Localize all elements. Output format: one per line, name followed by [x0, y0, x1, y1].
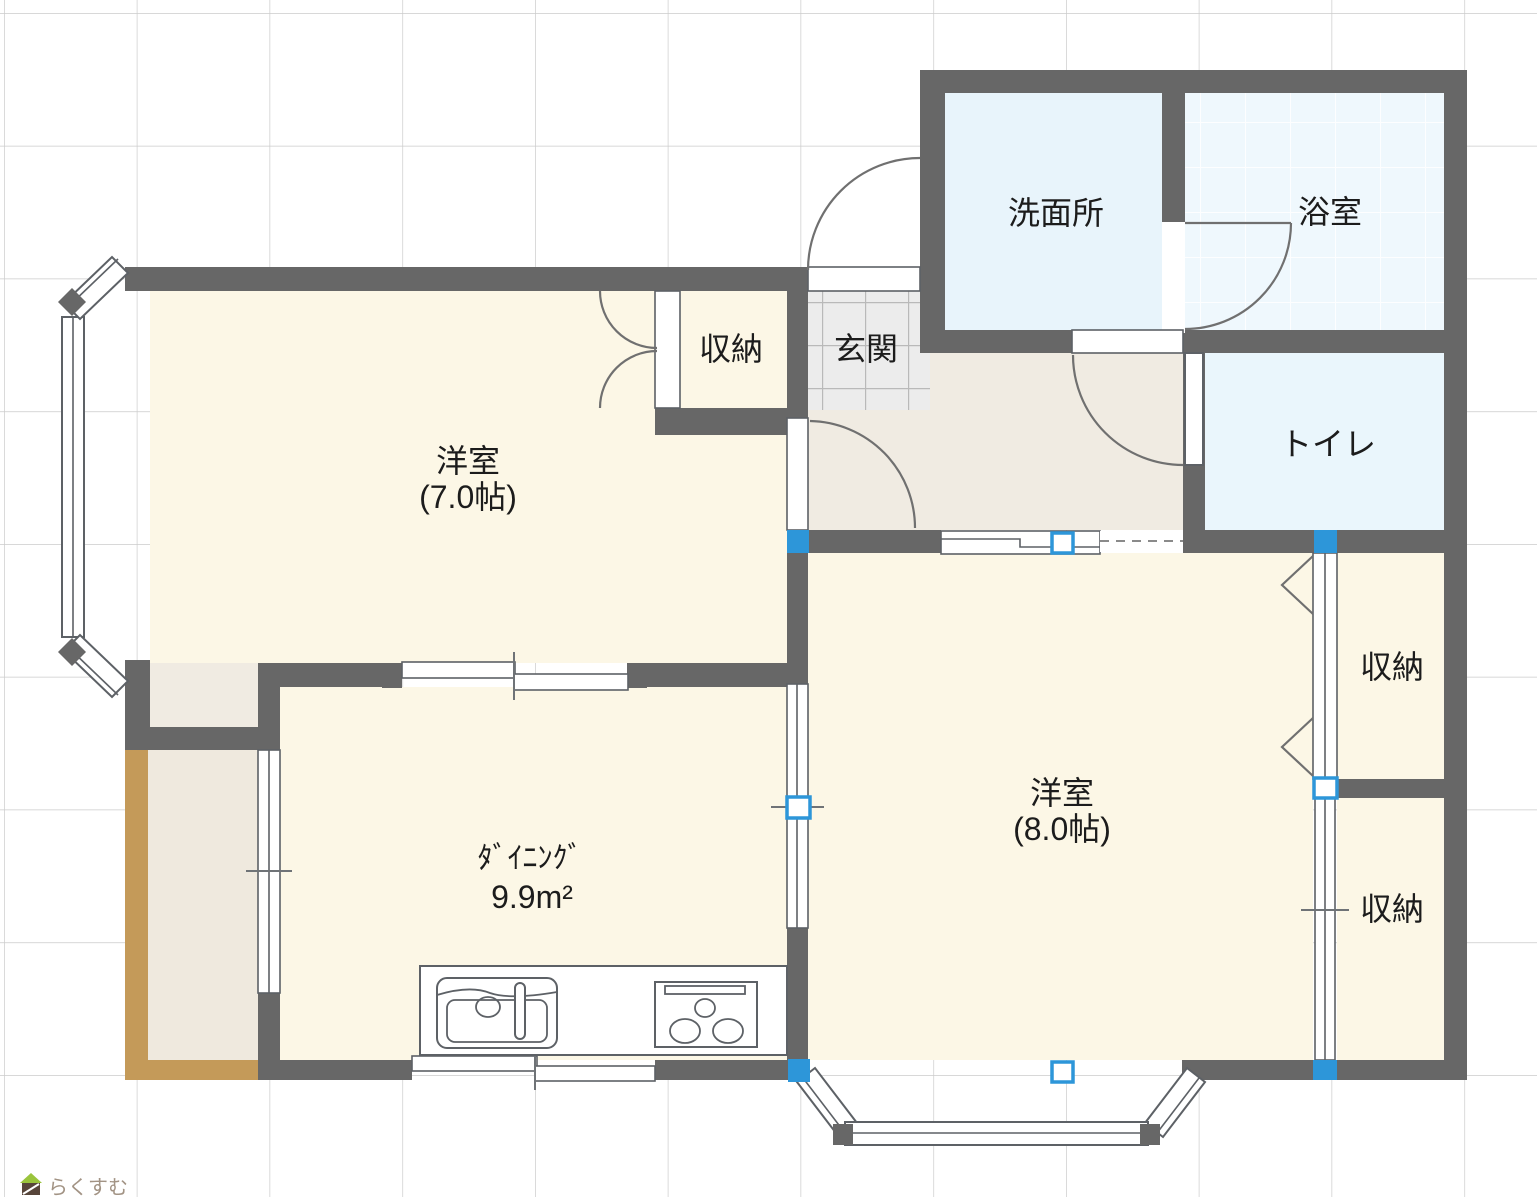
wall-segment[interactable] [808, 530, 941, 553]
bath-door-opening[interactable] [1162, 222, 1185, 333]
label-entrance: 玄関 [834, 331, 898, 367]
label-bath: 浴室 [1298, 194, 1362, 230]
floorplan-editor-canvas: 洗面所 浴室 収納 玄関 トイレ 洋室 (7.0帖) 収納 収納 洋室 (8.0… [0, 0, 1537, 1197]
selection-handle-open[interactable] [1052, 533, 1073, 553]
balcony-wall-left[interactable] [125, 750, 148, 1080]
entrance-door-opening[interactable] [808, 267, 920, 291]
wall-segment[interactable] [1162, 93, 1185, 222]
selection-handle-solid[interactable] [787, 530, 809, 553]
label-western7-size: (7.0帖) [419, 479, 517, 515]
wall-segment[interactable] [787, 553, 808, 684]
wall-segment[interactable] [1444, 70, 1467, 1080]
western7-dining-slider-pane[interactable] [402, 662, 515, 678]
label-western7-name: 洋室 [436, 443, 500, 479]
label-dining-name: ﾀﾞｲﾆﾝｸﾞ [478, 842, 583, 875]
wall-segment[interactable] [130, 267, 808, 291]
watermark-text: らくすむ [48, 1177, 128, 1197]
washroom-door-opening[interactable] [1072, 330, 1183, 353]
washroom-door-leaf[interactable] [1185, 353, 1203, 465]
hall-western7-door-opening[interactable] [787, 418, 808, 530]
wall-segment[interactable] [920, 70, 1467, 93]
western7-dining-slider-pane[interactable] [514, 674, 628, 690]
kitchen-unit[interactable] [420, 966, 787, 1055]
sink-faucet [515, 983, 525, 1039]
wall-segment[interactable] [627, 663, 787, 687]
wall-segment[interactable] [655, 408, 808, 435]
balcony-wall-bottom[interactable] [125, 1060, 258, 1080]
selection-handle-open[interactable] [1314, 778, 1337, 798]
label-washroom: 洗面所 [1008, 195, 1104, 231]
kitchen-window-pane[interactable] [535, 1066, 655, 1081]
bay-window-cap [833, 1124, 853, 1145]
selection-handle-solid[interactable] [1314, 530, 1337, 553]
selection-handle-solid[interactable] [1313, 1060, 1337, 1080]
slider-cap [627, 663, 647, 688]
label-closet-top: 収納 [699, 331, 763, 367]
selection-handle-open[interactable] [787, 797, 810, 818]
wall-segment[interactable] [258, 1060, 412, 1080]
bay-window-cap [1140, 1124, 1160, 1145]
wall-segment[interactable] [787, 928, 808, 1080]
label-western8-size: (8.0帖) [1013, 811, 1111, 847]
wall-segment[interactable] [258, 663, 280, 750]
wall-segment[interactable] [787, 267, 808, 418]
room-closet-right-lower-floor[interactable] [1337, 798, 1444, 1060]
alcove-floor[interactable] [148, 663, 258, 727]
closet-top-door-opening[interactable] [655, 291, 680, 408]
slider-cap [382, 663, 402, 688]
label-dining-size: 9.9m² [491, 879, 573, 915]
selection-handle-open[interactable] [1052, 1062, 1073, 1082]
selection-handle-solid[interactable] [788, 1059, 810, 1082]
wall-segment[interactable] [655, 1060, 810, 1080]
wall-segment[interactable] [143, 727, 260, 750]
label-closet-right-lower: 収納 [1360, 891, 1424, 927]
label-western8-name: 洋室 [1030, 775, 1094, 811]
label-closet-right-upper: 収納 [1360, 649, 1424, 685]
wall-segment[interactable] [920, 70, 945, 330]
wall-segment[interactable] [1337, 779, 1444, 798]
label-toilet: トイレ [1280, 426, 1376, 462]
wall-segment[interactable] [920, 330, 1467, 353]
balcony-floor[interactable] [148, 750, 258, 1060]
kitchen-window-pane[interactable] [412, 1056, 537, 1071]
